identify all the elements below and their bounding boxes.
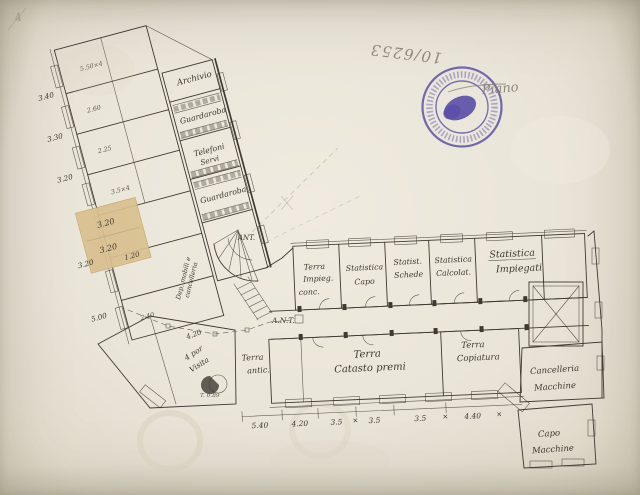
dimension-label: 3.5 [368, 416, 381, 426]
room-label: Schede [394, 270, 424, 280]
room-note: 2.25 [96, 145, 112, 156]
signature-text: Piano [480, 80, 519, 98]
dimension-label: 3.5 [330, 417, 343, 427]
dimension-label: 3.20 [56, 172, 74, 185]
left-wing-window-piers [50, 65, 127, 330]
dimension-label: 3.30 [46, 131, 64, 144]
registry-number: 10/6253 [369, 40, 443, 67]
dimension-label: 4.20 [290, 419, 308, 429]
room-label: antic. [247, 365, 270, 375]
dimension-label: 3.40 [37, 90, 55, 103]
room-label: Statistica [434, 254, 472, 265]
room-label: Terra [241, 353, 263, 363]
door-arcs [319, 290, 519, 309]
room-note: 2.60 [85, 104, 101, 115]
room-note: 3.5×4 [110, 184, 130, 196]
pencil-signature: Piano [448, 80, 519, 98]
room-label: Impiegati [495, 262, 543, 275]
room-label-cancelleria: Macchine [533, 381, 577, 394]
dimension-line: 5.40 4.20 3.5 3.5 3.5 4.40 × × × [242, 399, 523, 430]
room-label: Catasto premi [334, 361, 406, 375]
floor-plan-drawing: 4 [0, 0, 640, 495]
room-label: Terra [304, 262, 326, 272]
circular-ink-stamp [423, 68, 502, 147]
room-label: Statist. [393, 257, 422, 267]
dimension-x-mark: × [442, 413, 448, 421]
dimension-label: 5.40 [251, 420, 268, 430]
room-label: Terra [461, 340, 485, 351]
dimension-label: 5.00 [90, 311, 108, 324]
dimension-x-mark: × [496, 410, 502, 418]
room-label: Statistica [346, 262, 384, 273]
scanned-paper-sheet: 4 [0, 0, 640, 495]
ant-label-upper: ANT. [237, 234, 255, 242]
visita-block: 4.20 4 por Visita T. 0.89 [98, 316, 236, 408]
paper-stains [55, 44, 610, 480]
depot-note: Dep. mobili e cancelleria [174, 254, 201, 303]
bottom-wing: Terra Impieg. conc. Statistica Capo Stat… [235, 228, 595, 430]
room-label-capo: Macchine [531, 443, 575, 456]
room-label: Calcolat. [436, 267, 471, 278]
room-label-archivio: Archivio [175, 69, 213, 88]
room-label: Copiatura [457, 352, 500, 364]
room-label-guardaroba-2: Guardaroba [199, 184, 247, 205]
dimension-label: 3.5 [414, 414, 427, 424]
dimension-x-mark: × [352, 417, 358, 425]
room-label: conc. [299, 287, 320, 297]
room-label: Impieg. [302, 274, 333, 284]
room-label: Capo [354, 277, 375, 287]
ladder-stair [234, 277, 272, 320]
scribble: T. 0.89 [200, 393, 220, 399]
dimension-label: 4.40 [463, 411, 481, 421]
top-wall-piers [307, 229, 575, 249]
room-label-cancelleria: Cancelleria [530, 364, 580, 377]
room-label-capo: Capo [538, 428, 561, 440]
dimension-label: 4.20 [184, 328, 203, 341]
corner-pencil-mark: 4 [8, 8, 26, 30]
ant-label-lower: A.N.T. [271, 316, 295, 325]
room-label: Terra [353, 349, 381, 361]
